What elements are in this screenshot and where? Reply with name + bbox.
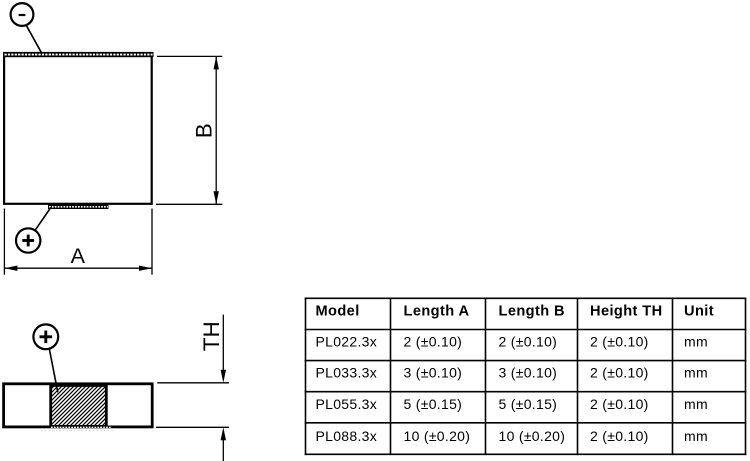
svg-text:3 (±0.10): 3 (±0.10) — [499, 365, 558, 381]
svg-text:PL055.3x: PL055.3x — [316, 396, 378, 412]
svg-text:5 (±0.15): 5 (±0.15) — [499, 396, 558, 412]
svg-text:mm: mm — [684, 334, 708, 350]
svg-text:3 (±0.10): 3 (±0.10) — [404, 365, 463, 381]
svg-text:mm: mm — [684, 428, 708, 444]
svg-text:PL033.3x: PL033.3x — [316, 365, 378, 381]
svg-text:2 (±0.10): 2 (±0.10) — [499, 334, 558, 350]
svg-text:2 (±0.10): 2 (±0.10) — [404, 334, 463, 350]
svg-text:Height TH: Height TH — [590, 304, 663, 320]
svg-text:Model: Model — [316, 304, 360, 320]
svg-text:TH: TH — [199, 321, 224, 351]
svg-text:Unit: Unit — [684, 304, 714, 320]
svg-text:mm: mm — [684, 365, 708, 381]
svg-text:PL022.3x: PL022.3x — [316, 334, 378, 350]
svg-text:2 (±0.10): 2 (±0.10) — [590, 334, 649, 350]
svg-text:A: A — [71, 244, 86, 268]
svg-text:PL088.3x: PL088.3x — [316, 428, 378, 444]
svg-text:B: B — [192, 123, 217, 138]
svg-text:10 (±0.20): 10 (±0.20) — [404, 428, 471, 444]
svg-text:2 (±0.10): 2 (±0.10) — [590, 396, 649, 412]
svg-text:Length B: Length B — [499, 304, 565, 320]
svg-text:2 (±0.10): 2 (±0.10) — [590, 428, 649, 444]
svg-text:Length A: Length A — [404, 304, 470, 320]
svg-text:10 (±0.20): 10 (±0.20) — [499, 428, 566, 444]
svg-text:5 (±0.15): 5 (±0.15) — [404, 396, 463, 412]
svg-text:2 (±0.10): 2 (±0.10) — [590, 365, 649, 381]
svg-text:mm: mm — [684, 396, 708, 412]
